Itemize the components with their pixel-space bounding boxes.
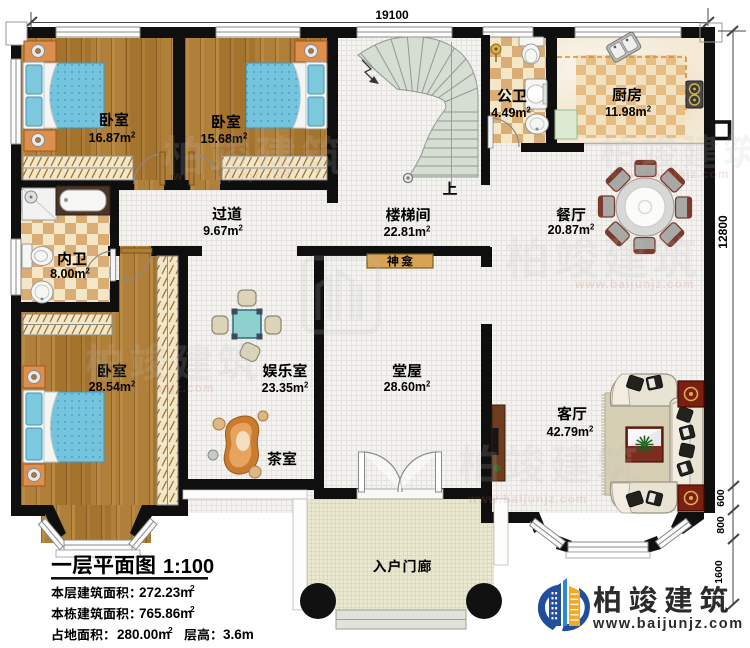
svg-text:23.35m2: 23.35m2 — [262, 381, 309, 395]
svg-text:2: 2 — [168, 625, 173, 635]
svg-text:600: 600 — [715, 489, 727, 507]
svg-text:2: 2 — [190, 604, 195, 614]
svg-text:4.49m2: 4.49m2 — [491, 106, 531, 120]
svg-text:8.00m2: 8.00m2 — [50, 267, 90, 281]
svg-text:42.79m2: 42.79m2 — [547, 425, 594, 439]
svg-text:765.86m: 765.86m — [139, 606, 192, 621]
svg-text:280.00m: 280.00m — [117, 627, 170, 642]
svg-text:28.60m2: 28.60m2 — [384, 380, 431, 394]
svg-text:12800: 12800 — [716, 215, 730, 249]
svg-text:www.baijunjz.com: www.baijunjz.com — [592, 616, 744, 632]
svg-text:9.67m2: 9.67m2 — [203, 224, 243, 238]
svg-text:www.baijunjz.com: www.baijunjz.com — [94, 381, 215, 395]
svg-text:1600: 1600 — [713, 560, 725, 584]
svg-text:800: 800 — [715, 516, 727, 534]
svg-text:3.6m: 3.6m — [223, 627, 254, 642]
svg-text:www.baijunjz.com: www.baijunjz.com — [172, 169, 293, 183]
svg-text:www.baijunjz.com: www.baijunjz.com — [467, 492, 588, 506]
svg-text:www.baijunjz.com: www.baijunjz.com — [609, 167, 730, 181]
svg-text:16.87m2: 16.87m2 — [89, 131, 136, 145]
svg-text:11.98m2: 11.98m2 — [605, 105, 652, 119]
svg-text:22.81m2: 22.81m2 — [384, 225, 431, 239]
svg-text:20.87m2: 20.87m2 — [548, 223, 595, 237]
svg-text:19100: 19100 — [375, 8, 409, 22]
svg-text:2: 2 — [190, 583, 195, 593]
svg-text:1:100: 1:100 — [163, 556, 214, 578]
svg-text:272.23m: 272.23m — [139, 585, 192, 600]
svg-text:www.baijunjz.com: www.baijunjz.com — [574, 277, 695, 291]
